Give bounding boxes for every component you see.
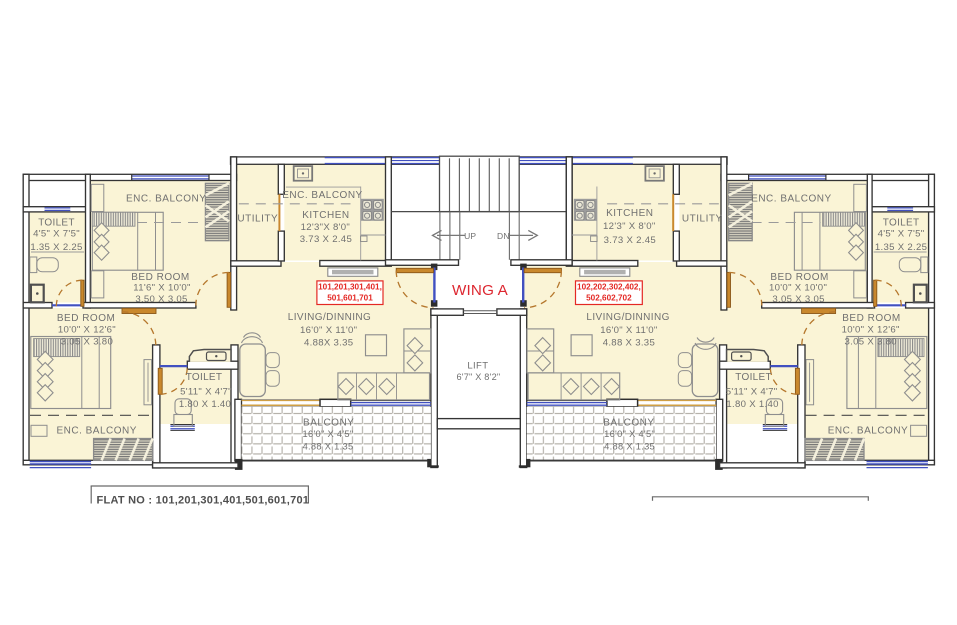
- svg-text:11'6" X 10'0": 11'6" X 10'0": [133, 283, 190, 294]
- svg-text:3.05 X 3.05: 3.05 X 3.05: [772, 294, 824, 305]
- svg-text:16'0" X 4'5": 16'0" X 4'5": [303, 429, 354, 439]
- svg-text:502,602,702: 502,602,702: [586, 294, 632, 303]
- svg-text:16'0" X 11'0": 16'0" X 11'0": [600, 325, 657, 336]
- svg-text:4.88 X 1.35: 4.88 X 1.35: [303, 442, 354, 452]
- svg-text:1.35 X 2.25: 1.35 X 2.25: [30, 242, 82, 253]
- svg-text:4'5" X 7'5": 4'5" X 7'5": [878, 229, 925, 240]
- svg-text:TOILET: TOILET: [38, 218, 75, 229]
- svg-text:3.73 X 2.45: 3.73 X 2.45: [300, 234, 352, 245]
- svg-text:1.80 X 1.40: 1.80 X 1.40: [179, 399, 231, 410]
- svg-text:BED ROOM: BED ROOM: [57, 313, 115, 324]
- svg-text:ENC. BALCONY: ENC. BALCONY: [56, 426, 136, 437]
- svg-text:4.88X 3.35: 4.88X 3.35: [304, 337, 353, 348]
- svg-text:KITCHEN: KITCHEN: [302, 210, 349, 221]
- svg-text:6'7" X 8'2": 6'7" X 8'2": [456, 372, 500, 382]
- svg-text:4'5" X 7'5": 4'5" X 7'5": [33, 229, 80, 240]
- svg-text:12'3"X 8'0": 12'3"X 8'0": [301, 222, 351, 233]
- svg-text:ENC. BALCONY: ENC. BALCONY: [282, 190, 362, 201]
- svg-text:TOILET: TOILET: [186, 372, 223, 383]
- svg-text:BED ROOM: BED ROOM: [842, 313, 900, 324]
- svg-text:BED ROOM: BED ROOM: [770, 272, 828, 283]
- svg-text:10'0" X 10'0": 10'0" X 10'0": [769, 283, 827, 294]
- svg-text:FLAT NO : 101,201,301,401,501,: FLAT NO : 101,201,301,401,501,601,701: [97, 495, 310, 507]
- svg-text:102,202,302,402,: 102,202,302,402,: [577, 282, 641, 291]
- svg-text:LIVING/DINNING: LIVING/DINNING: [288, 312, 371, 323]
- svg-text:LIVING/DINNING: LIVING/DINNING: [586, 312, 669, 323]
- svg-text:UTILITY: UTILITY: [237, 213, 278, 224]
- svg-text:BED ROOM: BED ROOM: [131, 272, 189, 283]
- svg-text:ENC. BALCONY: ENC. BALCONY: [828, 426, 908, 437]
- svg-text:UTILITY: UTILITY: [682, 213, 723, 224]
- svg-text:4.88 X 1.35: 4.88 X 1.35: [604, 442, 655, 452]
- svg-text:TOILET: TOILET: [735, 372, 772, 383]
- svg-text:101,201,301,401,: 101,201,301,401,: [318, 282, 382, 291]
- svg-text:ENC. BALCONY: ENC. BALCONY: [751, 194, 831, 205]
- svg-text:3.05 X 3.80: 3.05 X 3.80: [61, 337, 113, 348]
- svg-text:1.80 X 1.40: 1.80 X 1.40: [726, 399, 778, 410]
- svg-text:12'3" X 8'0": 12'3" X 8'0": [603, 221, 655, 232]
- svg-text:5'11" X 4'7": 5'11" X 4'7": [726, 387, 778, 398]
- svg-text:KITCHEN: KITCHEN: [606, 208, 653, 219]
- svg-text:10'0" X 12'6": 10'0" X 12'6": [842, 324, 900, 335]
- svg-text:WING A: WING A: [452, 282, 509, 299]
- svg-text:501,601,701: 501,601,701: [327, 294, 373, 303]
- svg-text:1.35 X 2.25: 1.35 X 2.25: [875, 242, 927, 253]
- svg-text:ENC. BALCONY: ENC. BALCONY: [126, 194, 206, 205]
- svg-text:16'0" X 11'0": 16'0" X 11'0": [300, 325, 357, 336]
- svg-text:3.50 X 3.05: 3.50 X 3.05: [135, 294, 187, 305]
- svg-text:4.88 X 3.35: 4.88 X 3.35: [603, 337, 655, 348]
- svg-text:16'0" X 4'5": 16'0" X 4'5": [604, 429, 655, 439]
- svg-text:3.05 X 3.80: 3.05 X 3.80: [845, 337, 897, 348]
- svg-text:BALCONY: BALCONY: [303, 417, 354, 428]
- svg-text:TOILET: TOILET: [883, 218, 920, 229]
- svg-text:DN: DN: [497, 231, 510, 241]
- svg-text:10'0" X 12'6": 10'0" X 12'6": [58, 324, 116, 335]
- svg-text:LIFT: LIFT: [467, 360, 488, 371]
- svg-text:UP: UP: [464, 231, 476, 241]
- svg-text:5'11" X 4'7": 5'11" X 4'7": [180, 387, 232, 398]
- svg-text:3.73 X 2.45: 3.73 X 2.45: [604, 235, 656, 246]
- svg-text:BALCONY: BALCONY: [603, 417, 654, 428]
